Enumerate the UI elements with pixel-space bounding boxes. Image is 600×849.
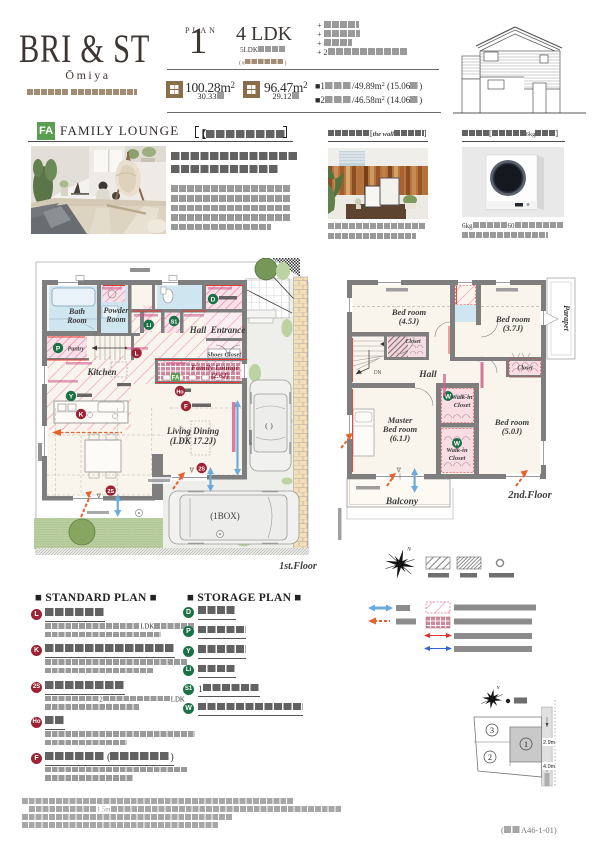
svg-text:Hall: Hall [189,325,207,335]
svg-text:2S: 2S [107,489,114,495]
svg-text:Powder: Powder [104,306,130,315]
svg-text:Walk-in: Walk-in [446,447,468,454]
svg-text:2: 2 [488,753,492,762]
svg-text:Room: Room [105,315,126,324]
svg-text:F: F [184,404,188,411]
svg-text:Kitchen: Kitchen [86,367,116,377]
svg-text:Li: Li [146,323,151,329]
svg-text:(6.1J): (6.1J) [390,433,411,443]
svg-text:(5.0J): (5.0J) [502,426,523,436]
svg-text:Hall: Hall [418,370,437,380]
svg-text:1: 1 [524,740,528,749]
svg-text:L: L [135,351,139,358]
svg-text:P: P [56,346,61,353]
svg-text:N: N [496,685,500,690]
svg-text:( ): ( ) [265,422,273,430]
svg-text:Balcony: Balcony [385,497,419,507]
svg-text:Closet: Closet [449,455,466,462]
svg-text:Pantry: Pantry [68,347,85,353]
svg-text:Entrance: Entrance [210,325,246,335]
svg-text:Closet: Closet [454,402,471,409]
svg-text:Bath: Bath [68,307,86,316]
svg-text:(3.7J): (3.7J) [503,323,524,333]
svg-text:Closet: Closet [405,339,421,345]
svg-text:Shoes Closet: Shoes Closet [207,352,241,359]
svg-text:W: W [454,441,461,448]
svg-text:FA: FA [172,376,180,382]
svg-text:(4.5J): (4.5J) [399,316,420,326]
svg-text:Walk-in: Walk-in [451,394,473,401]
svg-text:2nd.Floor: 2nd.Floor [507,490,552,501]
svg-text:2S: 2S [198,467,205,473]
svg-text:3: 3 [490,726,494,735]
svg-text:K: K [79,412,84,419]
svg-text:Room: Room [66,316,87,325]
svg-text:4.0m: 4.0m [543,764,556,770]
svg-text:D: D [211,297,216,304]
svg-text:(1BOX): (1BOX) [210,511,240,521]
svg-text:Living Dining: Living Dining [166,426,220,436]
svg-text:(LDK 17.2J): (LDK 17.2J) [170,436,217,446]
svg-text:DN: DN [374,370,382,376]
svg-text:N: N [407,547,412,553]
svg-text:Closet: Closet [517,366,533,372]
svg-text:2.9m: 2.9m [543,740,556,746]
svg-text:(2.6J): (2.6J) [211,371,230,380]
svg-text:1st.Floor: 1st.Floor [279,561,317,572]
svg-text:Parapet: Parapet [562,305,571,332]
svg-text:Y: Y [69,394,74,401]
svg-text:Ho: Ho [176,390,184,396]
svg-text:S1: S1 [171,320,178,326]
